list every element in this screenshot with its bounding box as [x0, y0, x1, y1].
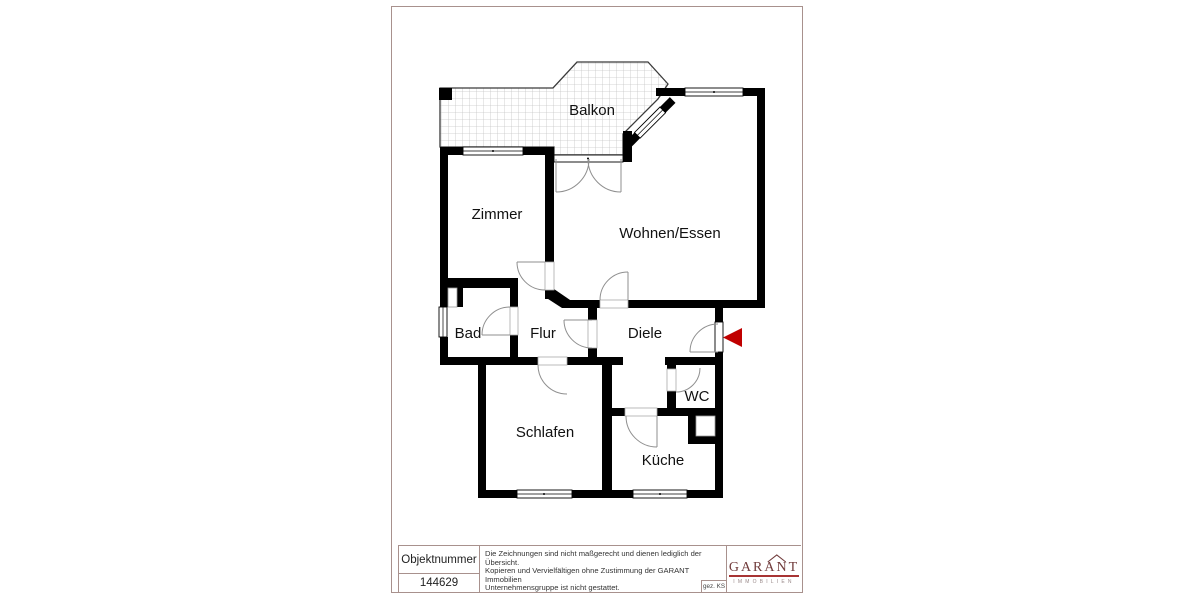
room-label-kueche: Küche [642, 452, 685, 469]
room-label-schlafen: Schlafen [516, 424, 574, 441]
screenshot-canvas: Objektnummer 144629 Die Zeichnungen sind… [0, 0, 1200, 600]
bad-window [439, 307, 447, 337]
room-label-wohnen-essen: Wohnen/Essen [619, 225, 720, 242]
entrance-arrow-icon [723, 328, 742, 347]
wall-niche [448, 288, 457, 307]
shaft-notch [696, 416, 715, 436]
room-label-bad: Bad [455, 325, 482, 342]
room-label-wc: WC [685, 388, 710, 405]
wohnen-window [685, 88, 743, 96]
zimmer-window [463, 147, 523, 155]
kueche-window [633, 490, 687, 498]
floorplan-drawing: Balkon Zimmer Wohnen/Essen Bad Flur Diel… [0, 0, 1200, 600]
room-label-diele: Diele [628, 325, 662, 342]
entrance-door-sill [715, 322, 723, 352]
room-label-balkon: Balkon [569, 102, 615, 119]
room-label-zimmer: Zimmer [472, 206, 523, 223]
schlafen-window [517, 490, 572, 498]
room-label-flur: Flur [530, 325, 556, 342]
